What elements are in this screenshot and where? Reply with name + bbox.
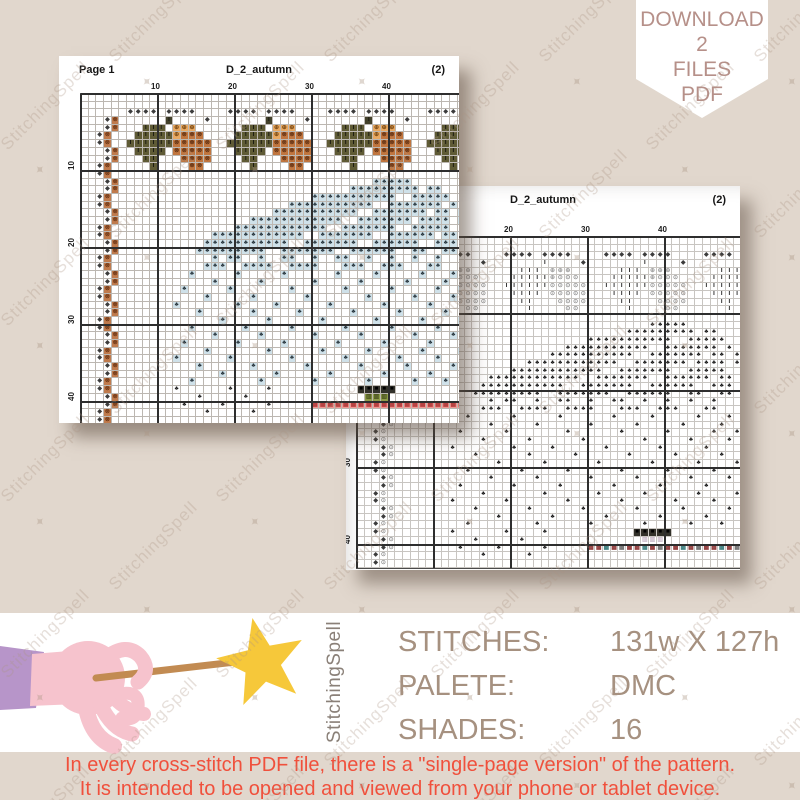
grid-cell <box>526 398 534 406</box>
grid-cell <box>734 329 740 337</box>
grid-cell <box>258 286 266 294</box>
grid-cell: ⊙ <box>557 275 565 283</box>
grid-cell <box>273 355 281 363</box>
grid-cell: I <box>618 299 626 307</box>
grid-cell <box>611 268 619 276</box>
grid-cell: ♣ <box>219 371 227 379</box>
grid-cell: ♣ <box>181 340 189 348</box>
grid-cell <box>688 283 696 291</box>
grid-cell: ♣ <box>350 186 358 194</box>
grid-cell: ◆ <box>549 252 557 260</box>
grid-cell <box>472 560 480 568</box>
grid-cell <box>166 294 174 302</box>
grid-cell <box>419 309 427 317</box>
axis-label: 30 <box>67 315 76 324</box>
grid-cell <box>365 552 373 560</box>
grid-cell <box>181 102 189 110</box>
grid-cell <box>403 437 411 445</box>
grid-cell <box>511 245 519 253</box>
grid-cell <box>572 560 580 568</box>
grid-cell <box>595 521 603 529</box>
grid-cell <box>189 202 197 210</box>
grid-cell: ♣ <box>365 348 373 356</box>
grid-cell: ♣ <box>688 521 696 529</box>
grid-cell: ⊙ <box>565 283 573 291</box>
grid-cell: ♣ <box>319 232 327 240</box>
grid-cell <box>335 286 343 294</box>
grid-cell: ♣ <box>250 232 258 240</box>
grid-cell: ◆ <box>281 109 289 117</box>
grid-cell: ⊗ <box>112 332 120 340</box>
grid-cell <box>365 521 373 529</box>
grid-cell <box>641 406 649 414</box>
grid-cell: I <box>518 275 526 283</box>
grid-cell <box>611 514 619 522</box>
grid-cell <box>511 422 519 430</box>
grid-cell <box>358 179 366 187</box>
grid-cell: ♣ <box>358 202 366 210</box>
grid-cell <box>518 352 526 360</box>
grid-cell <box>357 475 365 483</box>
grid-cell <box>680 337 688 345</box>
grid-cell: ⊗ <box>104 140 112 148</box>
grid-cell <box>173 248 181 256</box>
grid-cell <box>480 514 488 522</box>
grid-cell <box>242 117 250 125</box>
grid-cell: ◆ <box>327 109 335 117</box>
grid-cell: ♣ <box>404 202 412 210</box>
grid-cell <box>350 371 358 379</box>
grid-cell <box>618 322 626 330</box>
grid-cell <box>457 491 465 499</box>
grid-cell <box>196 225 204 233</box>
grid-cell <box>166 125 174 133</box>
grid-cell <box>611 368 619 376</box>
grid-cell: ⊗ <box>281 148 289 156</box>
grid-cell <box>549 560 557 568</box>
sparkle-icon: ✦ <box>783 248 800 267</box>
grid-cell <box>89 179 97 187</box>
grid-cell <box>350 271 358 279</box>
grid-cell: ♣ <box>412 294 420 302</box>
grid-cell <box>649 498 657 506</box>
grid-cell <box>534 437 542 445</box>
grid-cell: ♣ <box>465 414 473 422</box>
grid-cell: ◆ <box>526 252 534 260</box>
grid-cell <box>81 140 89 148</box>
grid-cell <box>242 171 250 179</box>
grid-cell <box>450 348 458 356</box>
grid-cell <box>534 498 542 506</box>
grid-cell <box>242 355 250 363</box>
grid-cell: ♣ <box>595 368 603 376</box>
grid-cell <box>173 232 181 240</box>
grid-cell <box>641 475 649 483</box>
grid-cell <box>711 514 719 522</box>
grid-cell: ♣ <box>549 445 557 453</box>
grid-cell <box>458 263 459 271</box>
grid-cell <box>365 355 373 363</box>
grid-cell: ⊙ <box>672 291 680 299</box>
grid-cell <box>189 217 197 225</box>
grid-cell <box>273 263 281 271</box>
grid-cell <box>603 329 611 337</box>
grid-cell <box>395 552 403 560</box>
grid-cell: ♣ <box>435 217 443 225</box>
grid-cell: ♣ <box>495 375 503 383</box>
grid-cell <box>465 352 473 360</box>
grid-cell <box>373 355 381 363</box>
grid-cell: ◆ <box>104 302 112 310</box>
grid-cell: ♣ <box>565 391 573 399</box>
grid-cell <box>412 179 420 187</box>
grid-cell: I <box>435 140 443 148</box>
grid-cell <box>396 194 404 202</box>
grid-cell <box>119 332 127 340</box>
grid-cell <box>495 414 503 422</box>
grid-cell: ♣ <box>649 368 657 376</box>
grid-cell: ♣ <box>603 337 611 345</box>
grid-cell <box>457 445 465 453</box>
grid-cell <box>572 314 580 322</box>
grid-cell: ♣ <box>427 263 435 271</box>
grid-cell <box>634 260 642 268</box>
grid-cell <box>626 529 634 537</box>
grid-cell <box>549 260 557 268</box>
grid-cell <box>89 302 97 310</box>
grid-cell: ◆ <box>104 179 112 187</box>
grid-cell <box>358 378 366 386</box>
grid-cell <box>542 352 550 360</box>
grid-cell <box>296 255 304 263</box>
grid-cell <box>266 94 274 102</box>
grid-cell <box>649 260 657 268</box>
grid-cell <box>273 417 281 423</box>
grid-cell: ■ <box>649 529 657 537</box>
grid-cell <box>412 148 420 156</box>
grid-cell <box>649 345 657 353</box>
grid-cell: I <box>365 117 373 125</box>
grid-heavy-line <box>357 467 740 469</box>
grid-cell <box>649 314 657 322</box>
grid-cell: ♣ <box>358 186 366 194</box>
grid-cell <box>419 125 427 133</box>
sparkle-icon: ✦ <box>31 512 50 531</box>
grid-cell: ♣ <box>319 225 327 233</box>
grid-cell <box>335 302 343 310</box>
grid-cell: ♣ <box>204 409 212 417</box>
grid-cell <box>711 391 719 399</box>
grid-cell <box>465 406 473 414</box>
grid-cell <box>419 171 427 179</box>
grid-cell <box>511 360 519 368</box>
grid-cell <box>135 279 143 287</box>
grid-cell <box>726 552 734 560</box>
grid-cell: ♣ <box>258 332 266 340</box>
grid-cell <box>542 506 550 514</box>
grid-cell <box>135 171 143 179</box>
grid-cell: ♣ <box>204 348 212 356</box>
grid-cell <box>595 283 603 291</box>
grid-cell <box>273 102 281 110</box>
grid-cell <box>434 429 442 437</box>
grid-cell <box>158 194 166 202</box>
grid-cell <box>135 332 143 340</box>
grid-cell <box>266 194 274 202</box>
grid-cell <box>235 371 243 379</box>
grid-cell <box>158 363 166 371</box>
grid-cell <box>518 437 526 445</box>
grid-cell: ◆ <box>96 294 104 302</box>
grid-cell <box>319 109 327 117</box>
grid-cell: I <box>726 275 734 283</box>
grid-cell <box>335 94 343 102</box>
grid-cell: ◆ <box>372 437 380 445</box>
grid-cell <box>603 452 611 460</box>
grid-cell <box>219 148 227 156</box>
grid-cell <box>458 409 459 417</box>
grid-cell <box>595 506 603 514</box>
grid-cell <box>419 529 427 537</box>
grid-cell <box>412 409 420 417</box>
grid-cell: ⊗ <box>112 209 120 217</box>
grid-cell <box>335 179 343 187</box>
grid-cell <box>319 309 327 317</box>
grid-cell <box>518 560 526 568</box>
grid-cell <box>81 94 89 102</box>
grid-cell <box>365 529 373 537</box>
grid-cell: ♣ <box>350 263 358 271</box>
grid-cell <box>319 156 327 164</box>
grid-cell <box>266 378 274 386</box>
grid-cell: ♣ <box>718 352 726 360</box>
grid-cell: ♣ <box>212 263 220 271</box>
grid-cell <box>495 329 503 337</box>
grid-cell <box>435 232 443 240</box>
grid-cell <box>534 260 542 268</box>
grid-cell <box>603 406 611 414</box>
grid-cell <box>472 237 480 245</box>
grid-cell: ◆ <box>104 125 112 133</box>
grid-cell: I <box>350 156 358 164</box>
grid-cell <box>281 386 289 394</box>
grid-cell <box>711 475 719 483</box>
grid-cell <box>726 360 734 368</box>
grid-cell: ♣ <box>319 194 327 202</box>
grid-cell <box>695 529 703 537</box>
grid-cell <box>419 363 427 371</box>
grid-cell <box>204 271 212 279</box>
grid-cell: ⊙ <box>649 291 657 299</box>
grid-cell <box>258 371 266 379</box>
grid-cell <box>327 279 335 287</box>
grid-cell <box>219 286 227 294</box>
grid-cell <box>419 117 427 125</box>
grid-cell <box>680 483 688 491</box>
grid-cell <box>442 498 450 506</box>
grid-cell: ⊙ <box>480 283 488 291</box>
grid-cell <box>135 294 143 302</box>
grid-cell <box>688 452 696 460</box>
grid-cell <box>442 117 450 125</box>
grid-cell: I <box>435 148 443 156</box>
grid-cell <box>703 268 711 276</box>
grid-cell <box>127 94 135 102</box>
grid-cell: I <box>250 132 258 140</box>
grid-cell <box>688 275 696 283</box>
grid-cell <box>135 194 143 202</box>
grid-cell <box>611 560 619 568</box>
grid-cell: ♣ <box>412 186 420 194</box>
grid-cell <box>634 429 642 437</box>
grid-cell <box>688 529 696 537</box>
grid-cell: ♣ <box>273 302 281 310</box>
grid-cell <box>572 337 580 345</box>
grid-cell <box>458 171 459 179</box>
grid-cell <box>372 483 380 491</box>
grid-cell: I <box>634 275 642 283</box>
grid-cell <box>427 117 435 125</box>
grid-cell: I <box>135 140 143 148</box>
grid-cell <box>495 529 503 537</box>
grid-cell <box>81 279 89 287</box>
grid-cell <box>196 102 204 110</box>
grid-cell <box>143 217 151 225</box>
grid-cell <box>618 237 626 245</box>
grid-cell <box>557 245 565 253</box>
grid-cell <box>273 386 281 394</box>
grid-cell <box>112 132 120 140</box>
grid-cell <box>412 132 420 140</box>
grid-cell <box>649 452 657 460</box>
grid-cell <box>641 268 649 276</box>
grid-cell <box>526 237 534 245</box>
grid-cell <box>465 429 473 437</box>
grid-cell: ⊕ <box>373 132 381 140</box>
grid-cell <box>289 302 297 310</box>
grid-cell: ♣ <box>595 352 603 360</box>
grid-cell: ♣ <box>289 225 297 233</box>
grid-cell <box>119 255 127 263</box>
grid-cell <box>434 491 442 499</box>
grid-cell: ♣ <box>319 248 327 256</box>
grid-cell: ♣ <box>703 483 711 491</box>
grid-cell <box>680 268 688 276</box>
grid-cell <box>427 417 435 423</box>
grid-cell: ♣ <box>565 498 573 506</box>
grid-cell <box>572 414 580 422</box>
grid-cell <box>342 386 350 394</box>
grid-cell <box>472 314 480 322</box>
grid-cell <box>480 414 488 422</box>
grid-cell <box>449 521 457 529</box>
grid-heavy-line <box>510 237 512 568</box>
grid-cell <box>726 406 734 414</box>
grid-cell: ♣ <box>404 232 412 240</box>
grid-cell: I <box>534 283 542 291</box>
grid-heavy-line <box>388 94 390 423</box>
grid-cell: I <box>526 268 534 276</box>
grid-cell: ♣ <box>296 309 304 317</box>
grid-cell <box>112 255 120 263</box>
grid-cell <box>273 255 281 263</box>
grid-cell <box>488 299 496 307</box>
grid-cell <box>250 348 258 356</box>
grid-cell: ♣ <box>565 352 573 360</box>
grid-cell <box>189 102 197 110</box>
grid-cell: ♣ <box>250 263 258 271</box>
grid-cell <box>618 491 626 499</box>
grid-cell <box>565 414 573 422</box>
grid-cell <box>373 371 381 379</box>
grid-cell <box>565 237 573 245</box>
grid-cell <box>603 291 611 299</box>
grid-cell <box>89 294 97 302</box>
grid-cell <box>634 414 642 422</box>
grid-cell <box>196 232 204 240</box>
grid-cell <box>495 283 503 291</box>
grid-cell <box>365 302 373 310</box>
grid-cell <box>89 232 97 240</box>
grid-cell <box>204 378 212 386</box>
grid-cell <box>135 409 143 417</box>
grid-cell <box>603 299 611 307</box>
grid-cell <box>158 279 166 287</box>
grid-cell <box>143 294 151 302</box>
grid-cell: ◆ <box>96 378 104 386</box>
grid-cell <box>641 560 649 568</box>
grid-cell <box>465 475 473 483</box>
grid-cell: ⊙ <box>680 283 688 291</box>
grid-cell <box>166 263 174 271</box>
grid-cell <box>419 491 427 499</box>
grid-cell <box>396 102 404 110</box>
grid-cell <box>189 225 197 233</box>
grid-cell <box>395 437 403 445</box>
grid-cell <box>458 194 459 202</box>
grid-cell: ♣ <box>189 378 197 386</box>
grid-cell: ⊗ <box>281 132 289 140</box>
grid-cell: ◆ <box>718 252 726 260</box>
grid-cell: ◆ <box>372 529 380 537</box>
grid-cell <box>396 340 404 348</box>
grid-cell: I <box>350 148 358 156</box>
grid-cell <box>89 378 97 386</box>
grid-cell <box>465 245 473 253</box>
grid-cell <box>166 202 174 210</box>
grid-cell <box>526 445 534 453</box>
grid-cell <box>266 255 274 263</box>
grid-cell <box>695 283 703 291</box>
grid-cell: ♣ <box>335 255 343 263</box>
grid-cell <box>395 452 403 460</box>
grid-cell: ♣ <box>672 375 680 383</box>
grid-cell: ♣ <box>458 286 459 294</box>
grid-cell <box>89 255 97 263</box>
grid-cell <box>695 237 703 245</box>
grid-cell <box>204 309 212 317</box>
grid-cell: ⊗ <box>189 148 197 156</box>
grid-cell: ♣ <box>350 232 358 240</box>
grid-cell: ♣ <box>688 375 696 383</box>
grid-cell <box>734 406 740 414</box>
grid-cell <box>518 398 526 406</box>
grid-cell <box>634 521 642 529</box>
grid-cell <box>372 445 380 453</box>
grid-cell: ⊕ <box>649 275 657 283</box>
grid-cell <box>404 102 412 110</box>
grid-cell <box>135 371 143 379</box>
